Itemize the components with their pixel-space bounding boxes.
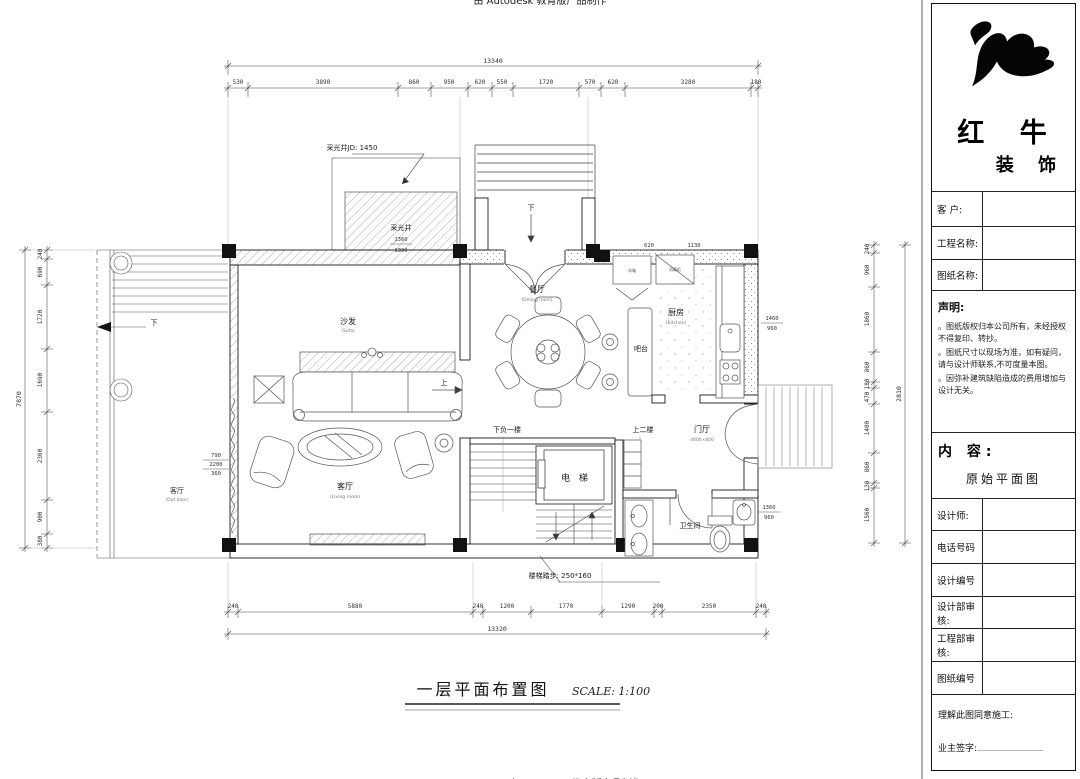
content-section: 内 容: 原始平面图 <box>932 432 1075 498</box>
field-value <box>983 629 1075 661</box>
signature-line <box>977 742 1043 751</box>
svg-text:130: 130 <box>864 480 871 491</box>
drawing-title: 一层平面布置图 SCALE: 1:100 <box>405 680 650 710</box>
field-drawing-number: 图纸编号 <box>932 661 1075 694</box>
field-value <box>983 260 1075 290</box>
svg-text:2350: 2350 <box>702 603 717 610</box>
svg-text:620: 620 <box>644 243 654 249</box>
svg-text:4600×600: 4600×600 <box>690 437 714 443</box>
statement-item: 。图纸版权归本公司所有，未经授权不得复印、转抄。 <box>938 321 1069 345</box>
field-value <box>983 227 1075 259</box>
skylight-label: 采光井 <box>391 223 412 232</box>
svg-text:240: 240 <box>37 248 44 259</box>
svg-text:1720: 1720 <box>539 79 554 86</box>
watermark-top: 由 Autodesk 教育版产品制作 <box>473 0 606 7</box>
sofa <box>293 372 462 421</box>
room-label-elevator: 电 梯 <box>561 472 591 484</box>
nav-down-basement: 下负一楼 <box>493 425 521 434</box>
nav-down-left: 下 <box>151 319 158 327</box>
field-design-number: 设计编号 <box>932 563 1075 596</box>
svg-text:7870: 7870 <box>15 391 23 407</box>
svg-text:960: 960 <box>764 515 774 521</box>
svg-text:(Sofa): (Sofa) <box>341 328 355 334</box>
label-sterilizer: 消毒柜 <box>669 266 681 272</box>
svg-text:1720: 1720 <box>37 309 44 324</box>
living-room-furniture <box>232 348 463 545</box>
field-customer: 客 户: <box>932 191 1075 226</box>
svg-text:960: 960 <box>864 264 871 275</box>
nav-down-porch: 下 <box>528 204 535 212</box>
svg-text:860: 860 <box>864 361 871 372</box>
field-drawing-name: 图纸名称: <box>932 259 1075 290</box>
skylight-leader-text: 采光井JD: 1450 <box>327 143 378 152</box>
plan-scale: SCALE: 1:100 <box>572 685 650 698</box>
svg-text:1360: 1360 <box>394 237 407 243</box>
top-porch <box>475 145 595 250</box>
room-label-living: 客厅 <box>337 481 353 491</box>
toilet <box>710 526 730 552</box>
field-value <box>983 192 1075 226</box>
leader-arrowhead <box>402 177 409 184</box>
field-designer: 设计师: <box>932 498 1075 530</box>
field-design-audit: 设计部审核: <box>932 596 1075 628</box>
svg-text:3280: 3280 <box>681 79 696 86</box>
svg-text:470: 470 <box>864 391 871 402</box>
floor-plan-canvas: 由 Autodesk 教育版产品制作 由 Autodesk 教育版产品制作 13… <box>0 0 1080 779</box>
svg-text:950: 950 <box>444 79 455 86</box>
field-label: 工程名称: <box>932 227 983 259</box>
side-table <box>435 434 453 452</box>
svg-text:240: 240 <box>228 603 239 610</box>
nav-up-second: 上二楼 <box>633 425 654 434</box>
field-label: 设计编号 <box>932 564 983 596</box>
light-well <box>332 154 460 250</box>
owner-signature-label: 业主签字: <box>938 741 1069 754</box>
bar-stool <box>602 374 618 390</box>
svg-text:240: 240 <box>756 603 767 610</box>
bar-stool <box>602 334 618 350</box>
svg-text:1360: 1360 <box>762 505 775 511</box>
svg-text:1560: 1560 <box>864 507 871 522</box>
svg-text:530: 530 <box>233 79 244 86</box>
construction-agreement-label: 理解此图同意施工: <box>938 708 1069 721</box>
field-project-name: 工程名称: <box>932 226 1075 259</box>
svg-text:(Out door): (Out door) <box>165 497 189 503</box>
toilet-tank <box>708 516 732 525</box>
brand-suffix: 装 饰 <box>996 151 1075 177</box>
svg-text:620: 620 <box>608 79 619 86</box>
svg-text:1860: 1860 <box>864 311 871 326</box>
field-label: 客 户: <box>932 192 983 226</box>
room-label-dining: 餐厅 <box>529 285 545 294</box>
svg-text:1200: 1200 <box>500 603 515 610</box>
svg-text:550: 550 <box>497 79 508 86</box>
signature-section: 理解此图同意施工: 业主签字: <box>932 694 1075 770</box>
svg-text:1690: 1690 <box>37 372 44 387</box>
dining-furniture <box>494 264 602 407</box>
svg-text:360: 360 <box>211 471 221 477</box>
svg-text:1130: 1130 <box>687 243 700 249</box>
field-label: 工程部审核: <box>932 629 983 661</box>
nav-up: 上 <box>441 378 448 387</box>
field-value <box>983 499 1075 530</box>
dining-table <box>511 315 585 389</box>
svg-text:2810: 2810 <box>895 386 903 402</box>
svg-text:1300: 1300 <box>394 248 407 254</box>
svg-text:690: 690 <box>37 266 44 277</box>
svg-text:13320: 13320 <box>487 625 507 633</box>
title-block: 红 牛 装 饰 客 户: 工程名称: 图纸名称: 声明: 。图纸版权归本公司所有… <box>931 3 1076 771</box>
company-logo: 红 牛 装 饰 <box>932 4 1075 191</box>
field-label: 电话号码 <box>932 531 983 563</box>
svg-text:570: 570 <box>585 79 596 86</box>
field-value <box>983 662 1075 694</box>
content-value: 原始平面图 <box>938 470 1069 487</box>
field-value <box>983 564 1075 596</box>
svg-text:860: 860 <box>864 461 871 472</box>
svg-text:1290: 1290 <box>621 603 636 610</box>
field-label: 设计师: <box>932 499 983 530</box>
statement-item: 。图纸尺寸以现场为准，如有疑问，请与设计师联系,不可度量本图。 <box>938 347 1069 371</box>
svg-text:240: 240 <box>864 243 871 254</box>
svg-text:1400: 1400 <box>864 420 871 435</box>
svg-text:900: 900 <box>37 511 44 522</box>
statement-item: 。因弥补建筑缺陷造成的费用增加与设计无关。 <box>938 373 1069 397</box>
room-label-outdoor: 客厅 <box>170 486 184 495</box>
armchair-right <box>393 429 436 480</box>
statement-title: 声明: <box>938 299 1069 315</box>
outdoor-terrace <box>97 250 230 558</box>
svg-text:620: 620 <box>475 79 486 86</box>
statement-section: 声明: 。图纸版权归本公司所有，未经授权不得复印、转抄。 。图纸尺寸以现场为准，… <box>932 290 1075 432</box>
field-value <box>983 597 1075 628</box>
svg-text:2360: 2360 <box>37 448 44 463</box>
room-label-sofa: 沙发 <box>340 316 356 326</box>
svg-text:2200: 2200 <box>209 462 222 468</box>
armchair-left <box>247 434 296 491</box>
svg-text:380: 380 <box>37 535 44 546</box>
plan-title: 一层平面布置图 <box>416 680 549 699</box>
label-fridge: 冰箱 <box>628 267 636 273</box>
room-label-bar: 吧台 <box>634 344 648 353</box>
kitchen-sink <box>720 324 740 352</box>
stair-note: 楼梯踏步: 250*160 <box>529 571 592 580</box>
svg-text:180: 180 <box>864 378 871 389</box>
direction-arrow-left <box>97 322 111 332</box>
field-value <box>983 531 1075 563</box>
room-label-bath: 卫生间 <box>680 521 701 530</box>
tv-cabinet <box>310 534 425 545</box>
svg-text:1460: 1460 <box>765 316 778 322</box>
content-label: 内 容: <box>938 441 1069 461</box>
svg-text:960: 960 <box>767 326 777 332</box>
svg-text:200: 200 <box>653 603 664 610</box>
svg-text:13340: 13340 <box>483 57 503 65</box>
svg-text:790: 790 <box>211 453 221 459</box>
svg-text:240: 240 <box>473 603 484 610</box>
brand-name: 红 牛 <box>947 111 1059 150</box>
field-label: 设计部审核: <box>932 597 983 628</box>
room-label-kitchen: 厨房 <box>668 307 684 317</box>
field-phone: 电话号码 <box>932 530 1075 563</box>
elevator-stairs <box>470 436 640 544</box>
svg-text:(Kitchen): (Kitchen) <box>666 320 687 326</box>
bull-logo-icon <box>944 4 1064 109</box>
svg-text:(Living room): (Living room) <box>330 494 360 500</box>
svg-text:1770: 1770 <box>559 603 574 610</box>
svg-text:860: 860 <box>409 79 420 86</box>
svg-text:(Dining room): (Dining room) <box>521 297 552 303</box>
room-label-foyer: 门厅 <box>694 424 710 434</box>
field-engineering-audit: 工程部审核: <box>932 628 1075 661</box>
field-label: 图纸编号 <box>932 662 983 694</box>
entry-steps <box>758 385 832 468</box>
field-label: 图纸名称: <box>932 260 983 290</box>
svg-text:3890: 3890 <box>316 79 331 86</box>
drawing-sheet: 由 Autodesk 教育版产品制作 由 Autodesk 教育版产品制作 13… <box>0 0 1080 779</box>
svg-text:180: 180 <box>751 79 762 86</box>
svg-text:5880: 5880 <box>348 603 363 610</box>
